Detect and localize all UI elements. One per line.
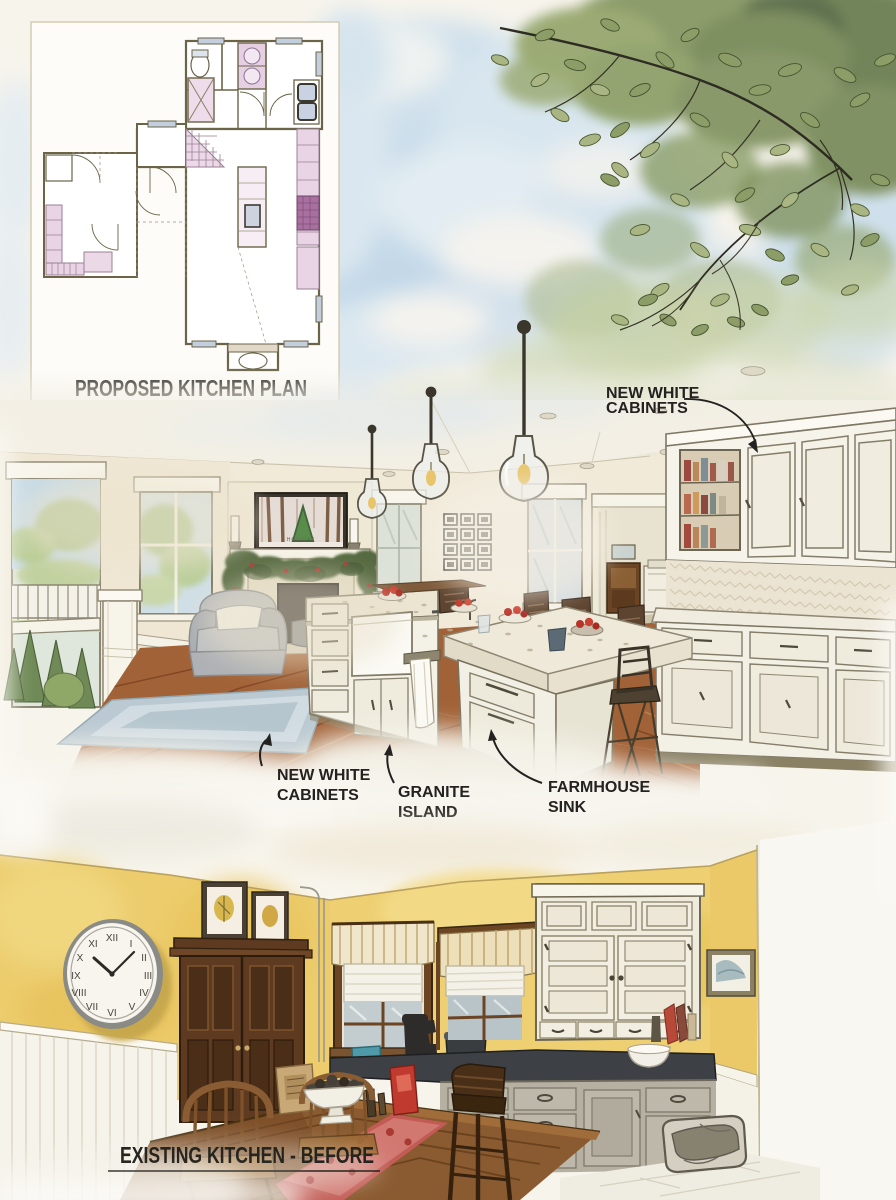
- svg-text:V: V: [129, 1002, 136, 1013]
- svg-text:GRANITE: GRANITE: [398, 784, 470, 801]
- svg-text:III: III: [144, 971, 152, 982]
- svg-text:FARMHOUSE: FARMHOUSE: [548, 779, 651, 796]
- svg-text:CABINETS: CABINETS: [606, 400, 688, 417]
- svg-text:VII: VII: [86, 1002, 98, 1013]
- svg-text:CABINETS: CABINETS: [277, 787, 359, 804]
- svg-text:ISLAND: ISLAND: [398, 804, 458, 821]
- svg-text:VI: VI: [107, 1008, 116, 1019]
- svg-text:EXISTING KITCHEN - BEFORE: EXISTING KITCHEN - BEFORE: [120, 1142, 374, 1168]
- svg-text:SINK: SINK: [548, 799, 587, 816]
- svg-text:II: II: [141, 953, 147, 964]
- svg-text:X: X: [77, 953, 84, 964]
- svg-text:NEW WHITE: NEW WHITE: [277, 767, 371, 784]
- svg-text:HOLIDAY: HOLIDAY: [287, 537, 316, 543]
- svg-text:IX: IX: [71, 971, 81, 982]
- svg-text:I: I: [130, 939, 133, 950]
- svg-text:XII: XII: [106, 933, 118, 944]
- svg-text:IV: IV: [139, 988, 149, 999]
- svg-text:VIII: VIII: [71, 988, 86, 999]
- svg-text:XI: XI: [88, 939, 97, 950]
